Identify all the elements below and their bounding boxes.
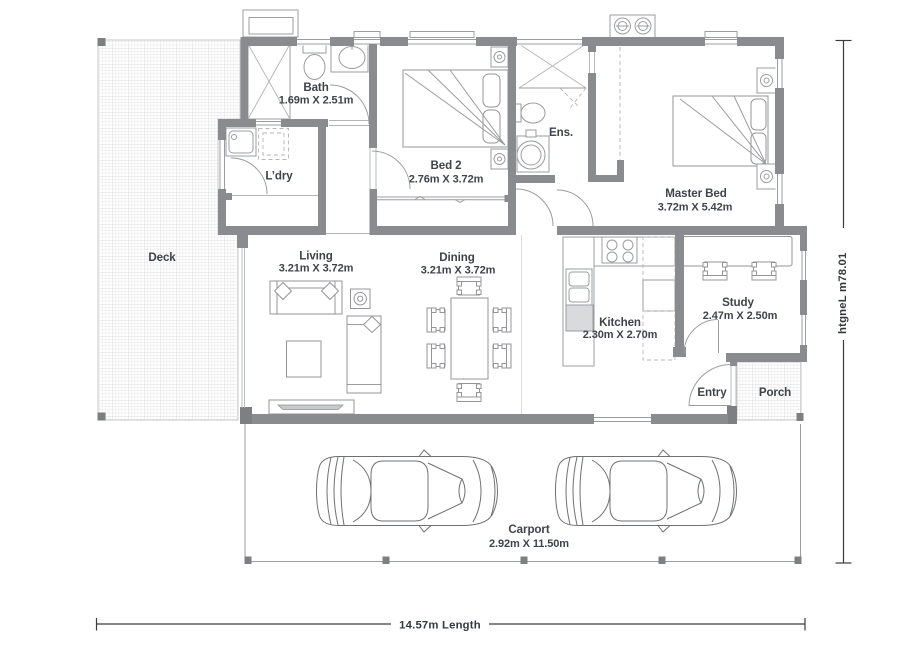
svg-text:Porch: Porch bbox=[759, 386, 791, 399]
svg-text:Study: Study bbox=[722, 296, 754, 309]
svg-text:Deck: Deck bbox=[148, 251, 176, 264]
svg-text:3.72m X 5.42m: 3.72m X 5.42m bbox=[658, 202, 733, 214]
svg-text:htgneL m78.01: htgneL m78.01 bbox=[837, 253, 849, 335]
svg-text:14.57m Length: 14.57m Length bbox=[399, 620, 481, 632]
svg-text:2.92m X 11.50m: 2.92m X 11.50m bbox=[489, 538, 569, 550]
svg-text:3.21m X 3.72m: 3.21m X 3.72m bbox=[279, 263, 354, 275]
svg-text:Bath: Bath bbox=[303, 81, 328, 94]
svg-text:3.21m X 3.72m: 3.21m X 3.72m bbox=[421, 265, 496, 277]
svg-text:Bed 2: Bed 2 bbox=[430, 159, 461, 172]
svg-text:L’dry: L’dry bbox=[265, 170, 293, 183]
svg-text:Dining: Dining bbox=[439, 251, 474, 264]
svg-text:Ens.: Ens. bbox=[549, 126, 573, 139]
svg-text:Master Bed: Master Bed bbox=[665, 187, 727, 200]
svg-text:2.76m X 3.72m: 2.76m X 3.72m bbox=[409, 174, 484, 186]
svg-text:Kitchen: Kitchen bbox=[599, 316, 641, 329]
svg-text:2.30m X 2.70m: 2.30m X 2.70m bbox=[583, 329, 658, 341]
svg-text:Living: Living bbox=[299, 250, 333, 263]
svg-text:Entry: Entry bbox=[697, 386, 727, 399]
svg-text:1.69m X 2.51m: 1.69m X 2.51m bbox=[279, 95, 354, 107]
svg-text:Carport: Carport bbox=[508, 523, 549, 536]
